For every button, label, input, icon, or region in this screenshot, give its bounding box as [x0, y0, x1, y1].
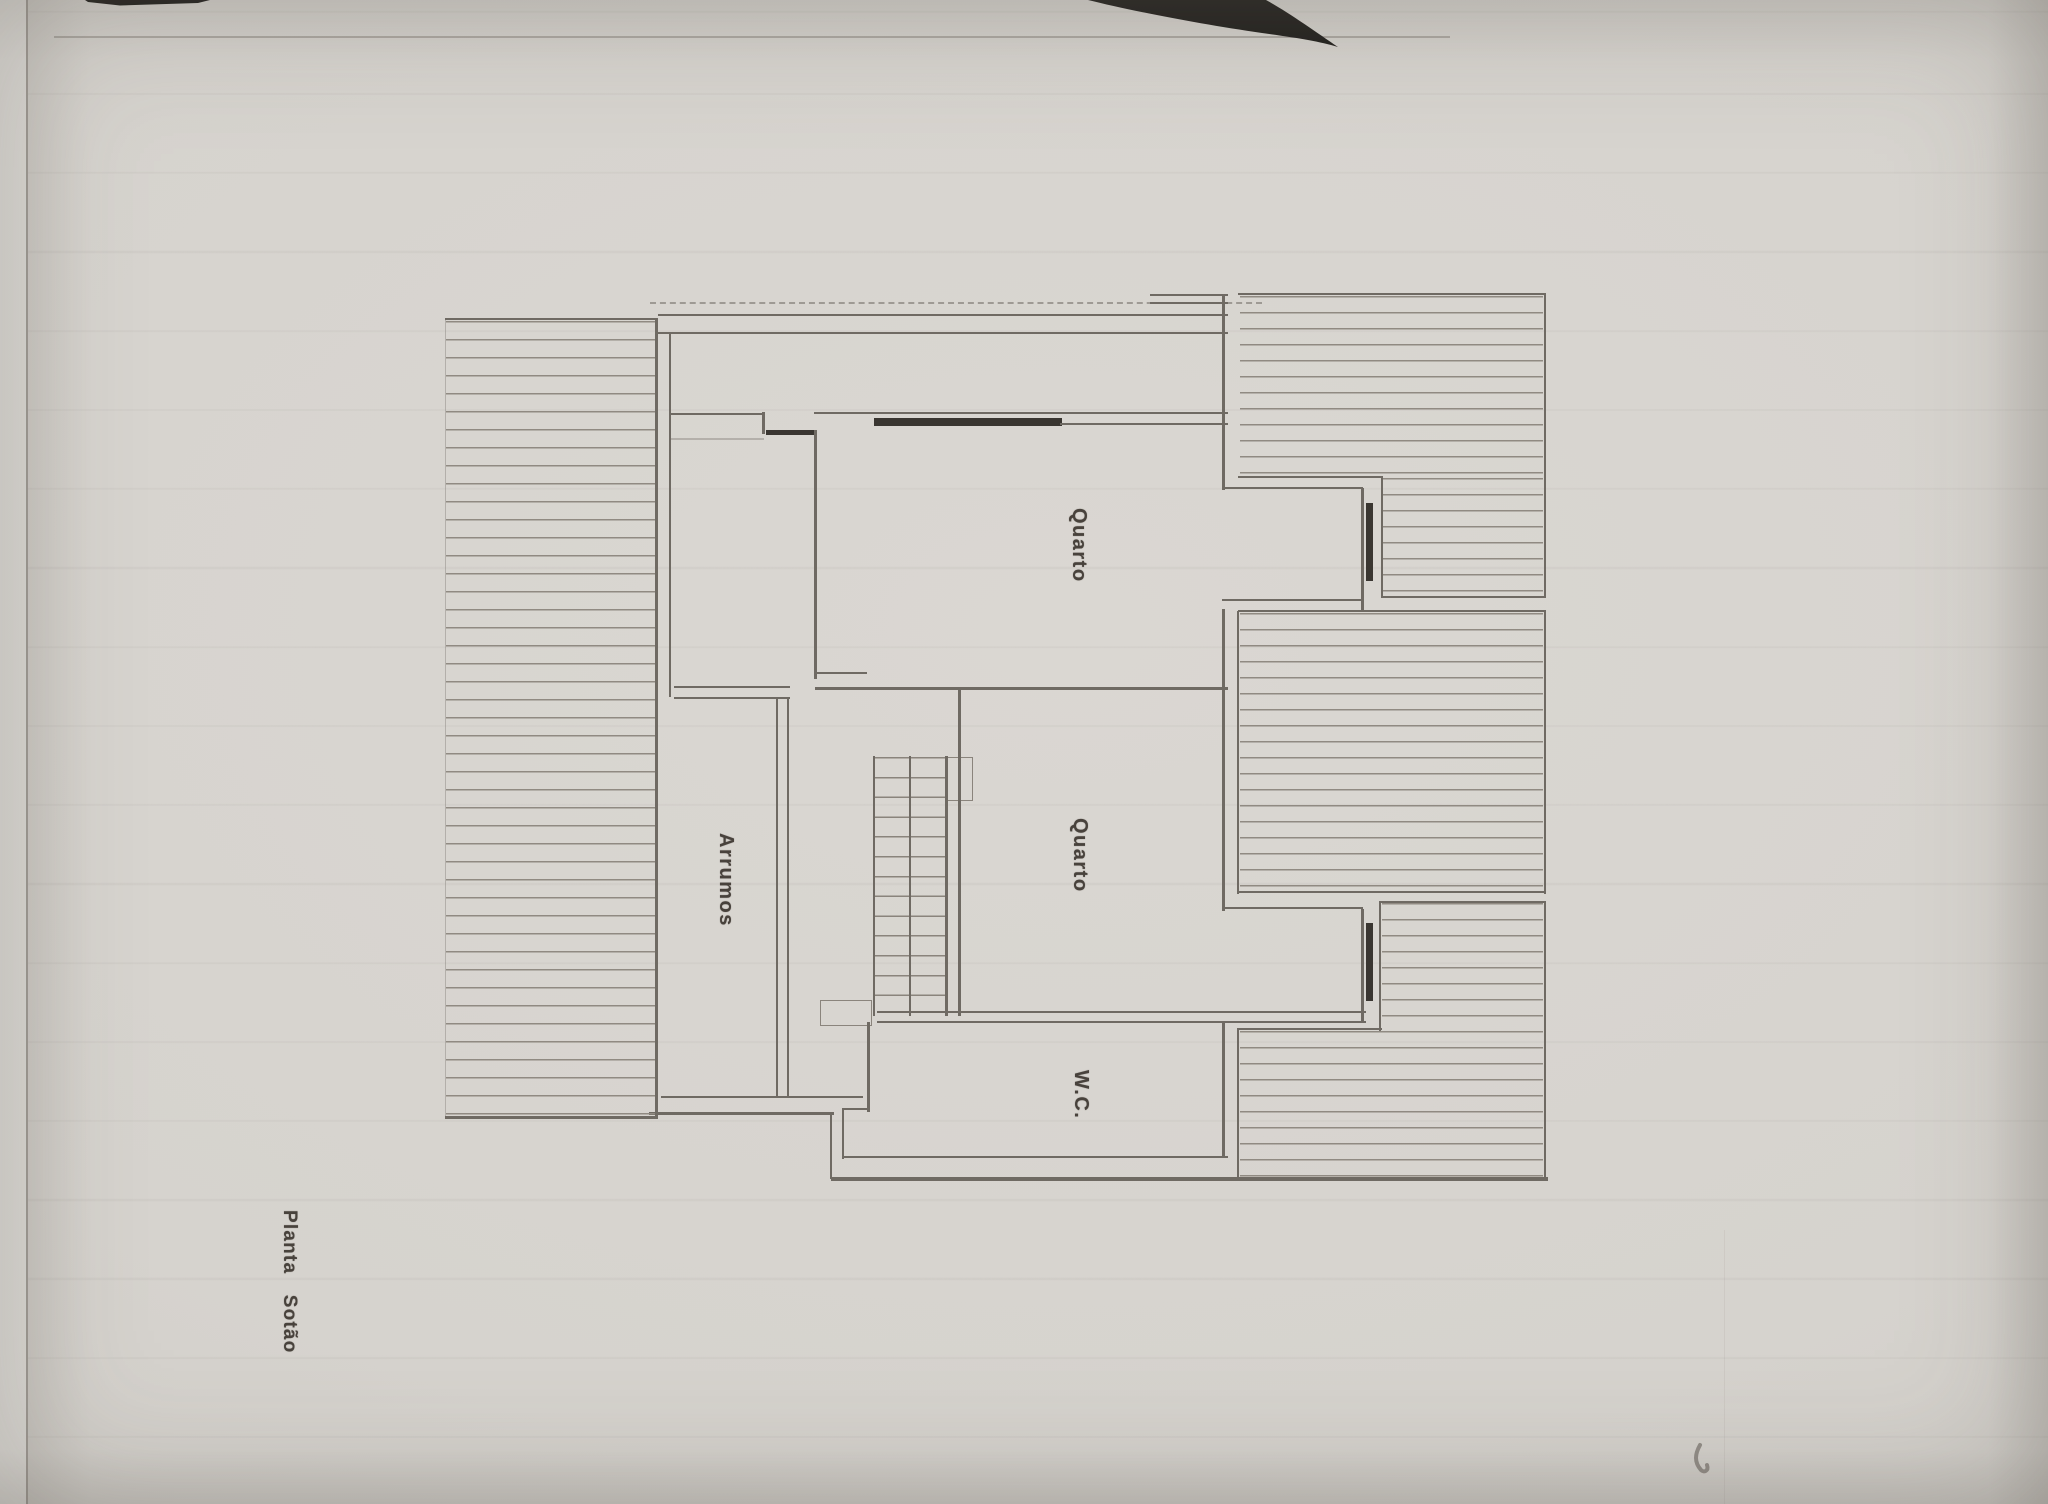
staircase-flight-right [911, 757, 945, 1014]
wall-segment [1222, 487, 1363, 489]
roof-hatch-top-right [1240, 296, 1543, 475]
wall-segment [1238, 293, 1546, 295]
wall-segment [877, 1011, 1366, 1013]
wall-segment [674, 686, 790, 688]
wall-segment [649, 1112, 834, 1115]
wall-segment [830, 1113, 832, 1179]
wall-segment [655, 318, 658, 1119]
wall-segment [1238, 891, 1546, 893]
room-label-wc: W.C. [1069, 1070, 1093, 1119]
wall-segment [815, 687, 1228, 690]
wall-segment [1222, 1021, 1225, 1157]
wall-segment [1222, 609, 1225, 911]
wall-segment [1379, 901, 1381, 1031]
wall-segment [1361, 488, 1364, 612]
wall-segment [1381, 596, 1546, 598]
room-label-arrumos: Arrumos [714, 833, 738, 927]
wall-segment [842, 1156, 1228, 1158]
wall-segment [843, 1108, 869, 1110]
roof-hatch-left [446, 321, 655, 1115]
wall-segment [1238, 610, 1546, 612]
wall-segment [1361, 909, 1364, 1023]
wall-segment [661, 1096, 863, 1098]
wall-segment [1237, 1028, 1239, 1178]
wall-segment [1150, 302, 1228, 304]
roof-hatch-bottom-right [1240, 1031, 1543, 1177]
wall-segment [867, 1022, 870, 1112]
wall-segment [1366, 503, 1373, 581]
roof-hatch-top-right-lower [1383, 478, 1543, 595]
wall-segment [1237, 611, 1239, 894]
wall-segment [670, 413, 765, 415]
wall-segment [1544, 612, 1546, 894]
wall-segment [658, 332, 1228, 334]
staircase-bottom-step [820, 1000, 872, 1026]
staircase-flight-left [875, 757, 909, 1014]
wall-segment [674, 697, 790, 699]
wall-segment [945, 756, 948, 1016]
roof-hatch-mid-right [1240, 613, 1543, 890]
wall-segment [958, 689, 961, 1016]
room-label-quarto-center: Quarto [1068, 818, 1092, 893]
wall-segment [842, 1108, 844, 1159]
wall-segment [1237, 1028, 1382, 1030]
wall-segment [1544, 294, 1546, 598]
wall-segment [1238, 476, 1383, 478]
wall-segment [1222, 294, 1225, 490]
wall-segment [1150, 294, 1228, 296]
wall-segment [815, 672, 867, 674]
plan-title: Planta Sotão [277, 1210, 301, 1353]
wall-segment [1222, 599, 1363, 601]
roof-hatch-bottom-right-upper [1382, 903, 1543, 1028]
wall-segment [445, 1116, 658, 1119]
wall-segment [669, 333, 671, 697]
scanned-floorplan-page: Quarto Quarto W.C. Arrumos Planta Sotão [0, 0, 2048, 1504]
wall-segment [776, 697, 778, 1098]
wall-segment [814, 430, 817, 679]
wall-segment [1366, 923, 1373, 1001]
wall-segment [873, 756, 875, 1016]
wall-segment [831, 1177, 1548, 1181]
wall-segment [671, 438, 764, 440]
wall-segment [874, 418, 1062, 426]
wall-segment [1060, 423, 1228, 425]
wall-segment [877, 1021, 1366, 1023]
wall-segment [658, 314, 1228, 316]
wall-segment [909, 756, 911, 1016]
wall-segment [445, 318, 658, 320]
wall-segment [1544, 902, 1546, 1180]
wall-segment [1222, 907, 1363, 909]
wall-segment [787, 697, 789, 1098]
wall-segment [766, 430, 816, 435]
wall-segment [814, 412, 1228, 414]
wall-segment [762, 412, 765, 434]
room-label-quarto-top: Quarto [1067, 508, 1091, 583]
floorplan-drawing: Quarto Quarto W.C. Arrumos Planta Sotão [0, 0, 2048, 1504]
